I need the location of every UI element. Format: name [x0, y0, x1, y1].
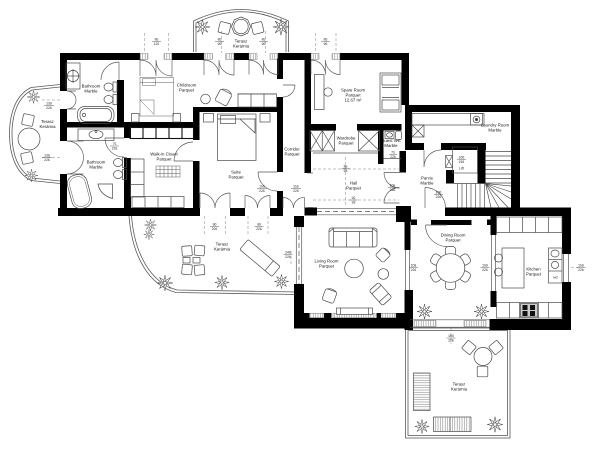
svg-text:100: 100	[459, 156, 465, 160]
svg-text:MG: MG	[553, 276, 558, 280]
svg-text:226: 226	[390, 155, 396, 159]
svg-text:Lift: Lift	[459, 167, 464, 171]
svg-text:Kerámia: Kerámia	[214, 247, 231, 252]
svg-text:226: 226	[46, 106, 52, 110]
svg-text:226: 226	[448, 339, 454, 343]
svg-text:Marble: Marble	[384, 143, 398, 148]
svg-text:93: 93	[352, 201, 356, 205]
svg-text:103: 103	[448, 334, 454, 338]
svg-text:155: 155	[259, 185, 265, 189]
svg-text:Parquet: Parquet	[319, 264, 335, 269]
svg-text:85: 85	[324, 38, 328, 42]
svg-text:125: 125	[154, 42, 160, 46]
svg-text:86: 86	[344, 165, 348, 169]
svg-text:226: 226	[436, 195, 442, 199]
svg-text:92: 92	[352, 196, 356, 200]
svg-text:85: 85	[155, 38, 159, 42]
svg-text:226: 226	[212, 227, 218, 231]
svg-text:Parquet: Parquet	[179, 88, 195, 93]
svg-text:Marble: Marble	[84, 89, 98, 94]
svg-text:Kerámia: Kerámia	[233, 44, 250, 49]
svg-text:240: 240	[285, 251, 291, 255]
svg-text:226: 226	[112, 147, 118, 151]
svg-text:109: 109	[482, 264, 488, 268]
svg-text:Parquet: Parquet	[284, 152, 300, 157]
svg-text:95: 95	[218, 42, 222, 46]
svg-text:Marble: Marble	[488, 128, 502, 133]
svg-text:Kerámia: Kerámia	[451, 387, 468, 392]
svg-text:Parquet: Parquet	[228, 175, 244, 180]
svg-text:100: 100	[436, 191, 442, 195]
svg-text:226: 226	[285, 255, 291, 259]
svg-text:Parquet: Parquet	[338, 141, 354, 146]
svg-text:95: 95	[324, 42, 328, 46]
svg-text:95: 95	[262, 42, 266, 46]
svg-text:106: 106	[390, 184, 396, 188]
svg-text:139: 139	[46, 102, 52, 106]
svg-text:Parquet: Parquet	[156, 157, 172, 162]
svg-text:226: 226	[44, 158, 50, 162]
svg-text:226: 226	[293, 189, 299, 193]
svg-text:155: 155	[293, 185, 299, 189]
svg-text:109: 109	[411, 264, 417, 268]
svg-text:139: 139	[44, 154, 50, 158]
svg-text:226: 226	[411, 268, 417, 272]
svg-text:75: 75	[113, 142, 117, 146]
svg-text:Kerámia: Kerámia	[39, 124, 56, 129]
svg-text:90: 90	[257, 223, 261, 227]
svg-text:Parquet: Parquet	[445, 238, 461, 243]
svg-text:226: 226	[459, 160, 465, 164]
svg-text:93: 93	[344, 169, 348, 173]
svg-text:Parquet: Parquet	[346, 186, 362, 191]
svg-text:85: 85	[218, 38, 222, 42]
svg-text:75: 75	[391, 151, 395, 155]
svg-text:226: 226	[482, 268, 488, 272]
svg-text:226: 226	[390, 188, 396, 192]
svg-text:85: 85	[262, 38, 266, 42]
svg-text:150: 150	[578, 264, 584, 268]
svg-text:Marble: Marble	[420, 181, 434, 186]
svg-text:226: 226	[256, 227, 262, 231]
svg-text:Parquet: Parquet	[526, 272, 542, 277]
svg-text:226: 226	[578, 268, 584, 272]
svg-text:90: 90	[213, 223, 217, 227]
svg-text:12.67 m²: 12.67 m²	[345, 98, 363, 103]
svg-text:Marble: Marble	[89, 165, 103, 170]
svg-text:226: 226	[259, 189, 265, 193]
